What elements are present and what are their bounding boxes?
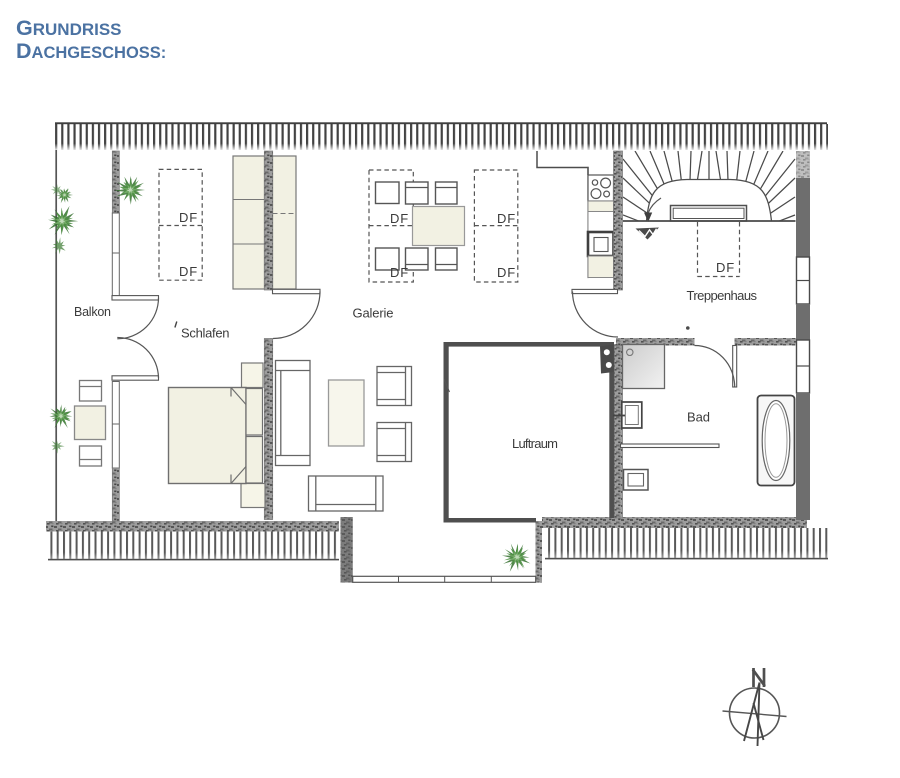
svg-text:DF: DF — [179, 210, 198, 225]
svg-text:Balkon: Balkon — [74, 305, 111, 319]
svg-text:GRUNDRISS: GRUNDRISS — [16, 16, 122, 40]
svg-text:Treppenhaus: Treppenhaus — [687, 288, 758, 303]
svg-text:Schlafen: Schlafen — [181, 326, 230, 341]
svg-text:DACHGESCHOSS:: DACHGESCHOSS: — [16, 39, 166, 63]
svg-text:Galerie: Galerie — [353, 306, 394, 321]
svg-text:Luftraum: Luftraum — [512, 436, 558, 451]
svg-text:DF: DF — [390, 211, 409, 226]
svg-text:DF: DF — [179, 264, 198, 279]
svg-text:DF: DF — [497, 211, 516, 226]
svg-text:DF: DF — [390, 265, 409, 280]
svg-text:Bad: Bad — [687, 410, 710, 425]
svg-text:DF: DF — [716, 260, 735, 275]
svg-text:DF: DF — [497, 265, 516, 280]
